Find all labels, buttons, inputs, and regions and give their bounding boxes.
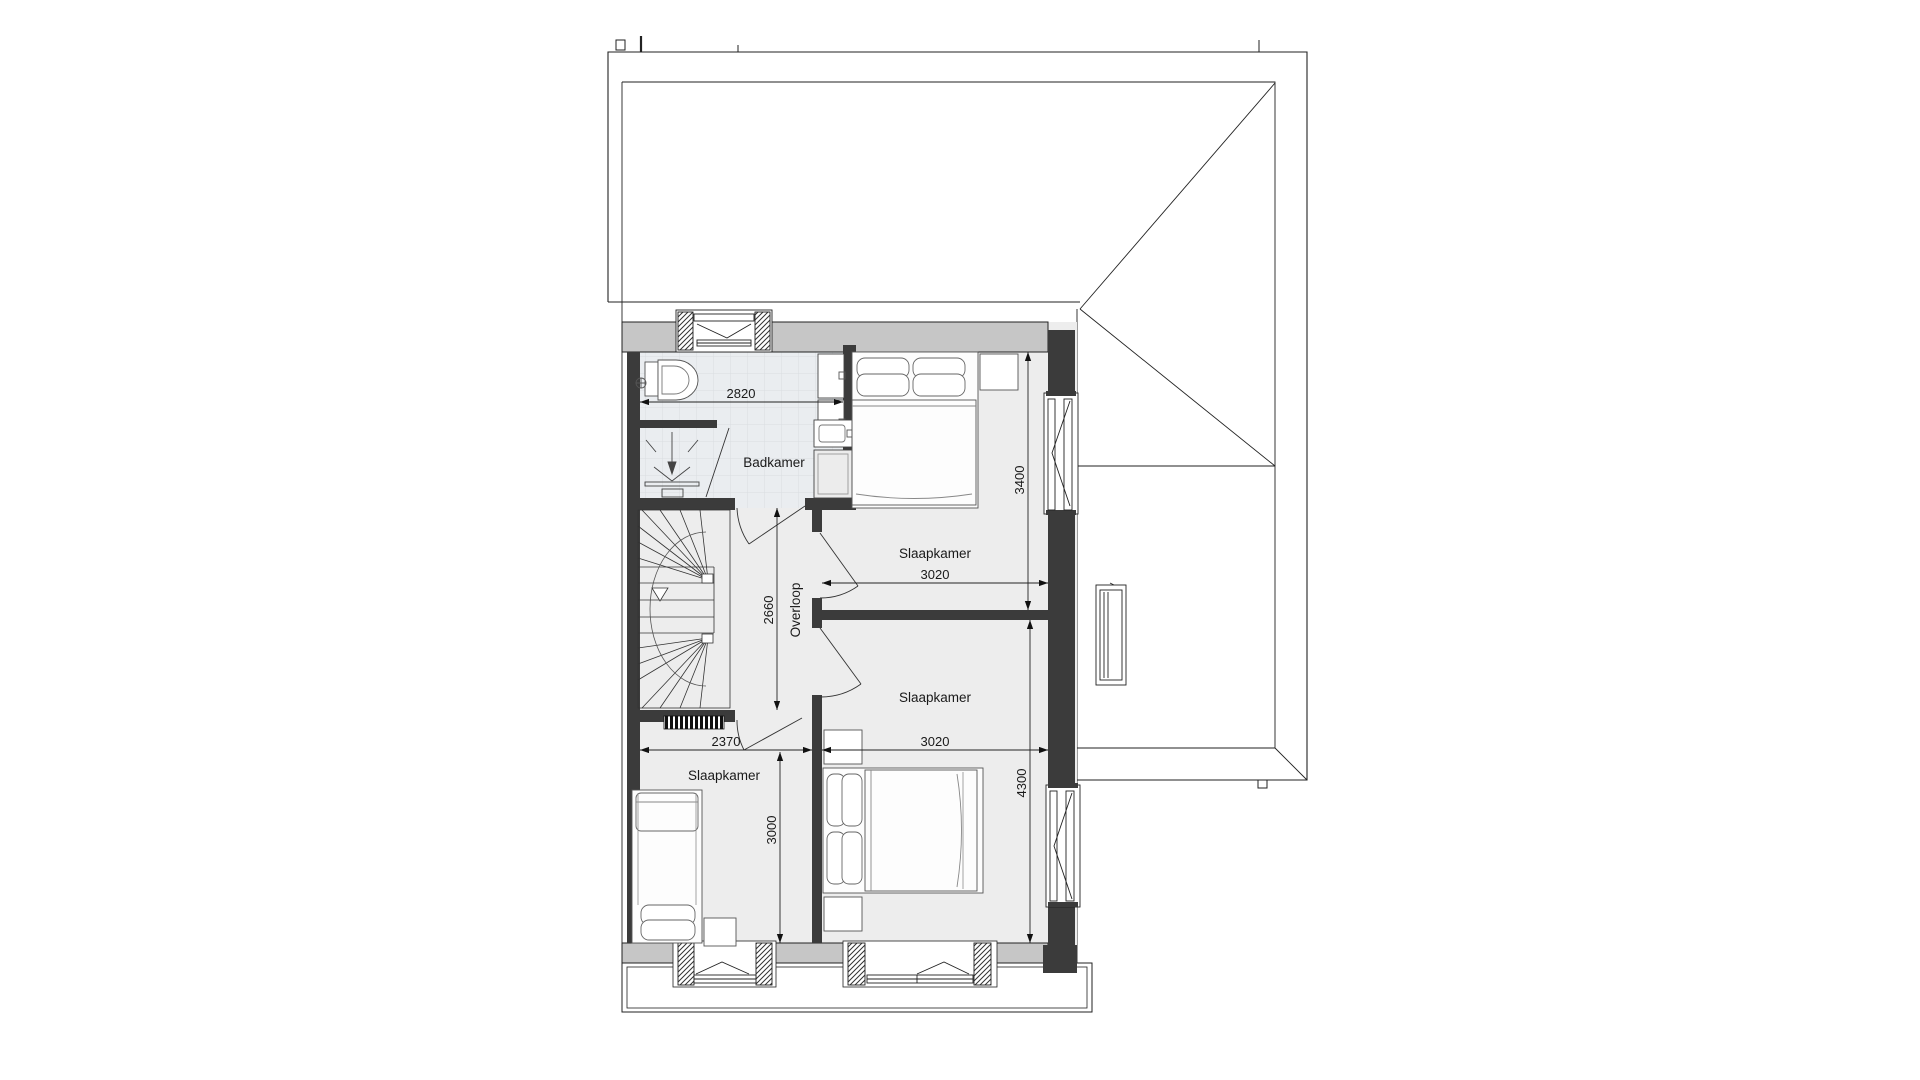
dim-bedroom-mr-width: 3020 [921,734,950,749]
wall-landing-b [812,598,822,628]
dim-bedroom-tr-depth: 3400 [1012,466,1027,495]
wall-right-b [1048,512,1075,787]
side-table-bottom-left [704,918,736,946]
label-bedroom-mid-right: Slaapkamer [899,690,972,705]
wall-landing-a [812,508,822,532]
wall-bedroom-divider [822,610,1048,620]
stair-newel [702,634,713,643]
window-bottom-right [843,941,997,987]
bathroom-cabinet [814,450,852,498]
roof-hip-upper [1080,83,1275,309]
label-bathroom: Badkamer [743,455,805,470]
bed-top-right [852,352,978,508]
window-top-bathroom [676,310,772,352]
pillow [641,905,695,940]
nightstand-top-right [980,354,1018,390]
label-bedroom-top-right: Slaapkamer [899,546,972,561]
nightstand-mid-bottom [824,897,862,931]
wall-landing-c [812,695,822,943]
bed-bottom-left [632,790,702,943]
floor-drain-symbol [636,378,646,388]
dim-bedroom-bl-depth: 3000 [764,816,779,845]
radiator-grille [664,716,724,729]
window-post-hatch [755,312,770,350]
window-post-hatch [848,943,865,985]
label-bedroom-bottom-left: Slaapkamer [688,768,761,783]
washbasin [814,420,852,447]
dim-landing-depth: 2660 [761,596,776,625]
window-post-hatch [974,943,991,985]
nightstand-mid-top [824,730,862,764]
bed-mid-right [823,768,983,893]
wall-bath-bottom-left [627,498,735,510]
ledge-right [770,330,792,336]
wall-right-a [1048,330,1075,395]
window-right-bottom [1046,783,1080,907]
window-right-top [1044,391,1078,515]
bottom-edge-mark [1258,780,1267,788]
wall-shower-top [627,420,717,428]
label-landing: Overloop [788,583,803,638]
window-bottom-left [673,941,776,987]
roof-corner-diagonal [1275,748,1307,780]
gutter-mark [616,40,625,50]
window-post-hatch [678,943,694,985]
stair-newel [702,574,713,583]
dim-bedroom-tr-width: 3020 [921,567,950,582]
floorplan-page: Badkamer 2820 Slaapkamer 3020 3400 2660 … [0,0,1920,1080]
dim-bathroom-width: 2820 [727,386,756,401]
toilet [645,360,698,400]
dim-bedroom-mr-depth: 4300 [1014,769,1029,798]
floorplan-drawing: Badkamer 2820 Slaapkamer 3020 3400 2660 … [0,0,1920,1080]
roof-window [1096,583,1126,685]
roof-hip-lower [1080,309,1275,466]
dim-bedroom-bl-width: 2370 [712,734,741,749]
window-post-hatch [678,312,693,350]
wall-corner-bottom-right [1043,945,1077,973]
window-post-hatch [756,943,772,985]
